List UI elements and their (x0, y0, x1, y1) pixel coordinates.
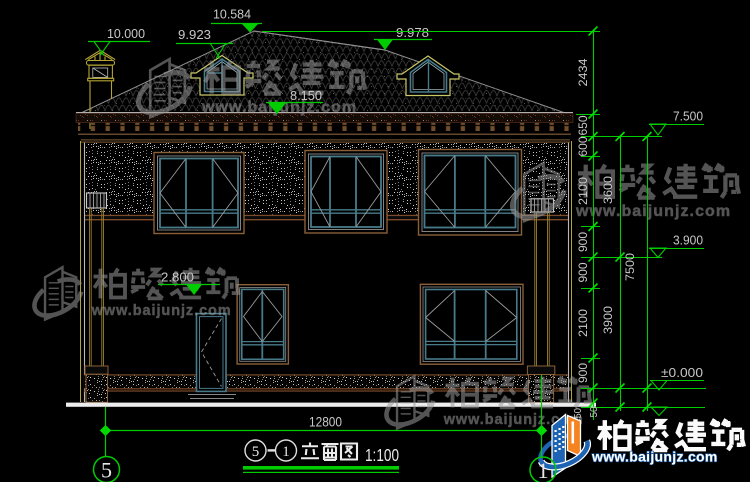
svg-text:www.baijunjz.com: www.baijunjz.com (591, 449, 718, 465)
svg-text:650: 650 (576, 115, 590, 135)
svg-text:8.150: 8.150 (290, 88, 322, 103)
svg-text:2100: 2100 (576, 309, 590, 337)
svg-text:1: 1 (282, 444, 290, 460)
svg-text:±0.000: ±0.000 (661, 366, 703, 380)
svg-text:50: 50 (588, 406, 600, 417)
svg-text:9.978: 9.978 (396, 25, 429, 40)
svg-text:2434: 2434 (576, 58, 590, 86)
svg-text:900: 900 (576, 262, 590, 282)
svg-text:1:100: 1:100 (365, 445, 399, 465)
svg-text:7500: 7500 (623, 253, 637, 281)
svg-text:3600: 3600 (601, 176, 615, 204)
svg-text:10.000: 10.000 (107, 26, 145, 41)
svg-text:600: 600 (576, 136, 590, 156)
svg-text:1: 1 (538, 458, 549, 482)
svg-text:10.584: 10.584 (213, 7, 251, 22)
svg-text:900: 900 (576, 363, 590, 383)
svg-text:5: 5 (252, 444, 260, 460)
svg-text:12800: 12800 (309, 415, 342, 430)
svg-text:3.900: 3.900 (673, 234, 703, 248)
svg-text:7.500: 7.500 (673, 110, 703, 124)
svg-text:2100: 2100 (576, 177, 590, 205)
svg-text:2.800: 2.800 (161, 270, 194, 285)
svg-text:5: 5 (101, 458, 112, 482)
svg-text:900: 900 (576, 232, 590, 252)
svg-text:3900: 3900 (601, 306, 615, 334)
svg-text:9.923: 9.923 (178, 27, 211, 42)
